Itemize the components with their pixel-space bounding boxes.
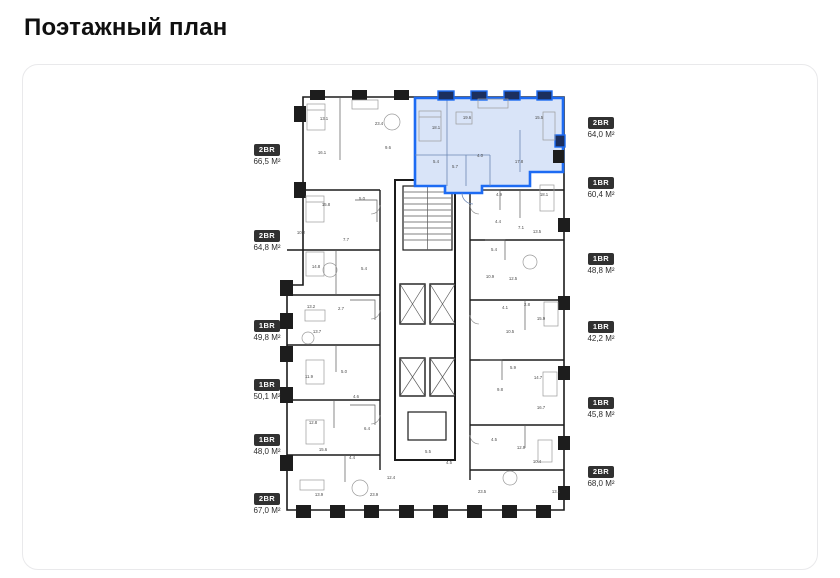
floor-plan[interactable]: 13.123.416.19.615.810.27.75.014.85.413.2…	[240, 80, 630, 555]
page-title: Поэтажный план	[24, 14, 227, 42]
room-area-label: 2.8	[524, 302, 531, 307]
unit-area: 42,2 М²	[576, 335, 626, 343]
room-area-label: 13.2	[307, 304, 316, 309]
room-area-label: 4.0	[477, 153, 484, 158]
unit-area: 50,1 М²	[242, 393, 292, 401]
room-area-label: 13.7	[313, 329, 322, 334]
room-area-label: 5.0	[359, 196, 366, 201]
unit-label-left-1[interactable]: 2BR64,8 М²	[242, 226, 292, 252]
unit-area: 48,0 М²	[242, 448, 292, 456]
unit-area: 49,8 М²	[242, 334, 292, 342]
room-area-label: 14.7	[534, 375, 543, 380]
room-area-label: 15.8	[322, 202, 331, 207]
unit-type-badge: 2BR	[254, 144, 280, 156]
room-area-label: 6.4	[364, 426, 371, 431]
room-area-label: 14.8	[312, 264, 321, 269]
room-area-label: 4.9	[496, 192, 503, 197]
room-area-label: 2.7	[338, 306, 345, 311]
room-area-label: 15.9	[537, 316, 546, 321]
room-area-label: 12.8	[309, 420, 318, 425]
room-area-label: 4.4	[495, 219, 502, 224]
unit-type-badge: 2BR	[254, 230, 280, 242]
unit-type-badge: 1BR	[588, 177, 614, 189]
room-area-label: 12.4	[387, 475, 396, 480]
unit-label-left-3[interactable]: 1BR50,1 М²	[242, 375, 292, 401]
room-area-label: 11.9	[305, 374, 314, 379]
unit-label-right-0[interactable]: 2BR64,0 М²	[576, 113, 626, 139]
unit-type-badge: 2BR	[588, 117, 614, 129]
room-area-label: 23.5	[478, 489, 487, 494]
room-area-label: 10.5	[506, 329, 515, 334]
unit-area: 68,0 М²	[576, 480, 626, 488]
room-area-label: 13.1	[552, 489, 561, 494]
room-area-label: 7.7	[343, 237, 350, 242]
room-area-label: 5.7	[452, 164, 459, 169]
room-area-label: 13.5	[533, 229, 542, 234]
room-area-label: 23.4	[375, 121, 384, 126]
room-area-label: 23.9	[370, 492, 379, 497]
unit-area: 67,0 М²	[242, 507, 292, 515]
room-area-label: 5.4	[433, 159, 440, 164]
room-area-label: 5.0	[341, 369, 348, 374]
unit-type-badge: 1BR	[588, 397, 614, 409]
room-area-label: 17.8	[515, 159, 524, 164]
unit-type-badge: 1BR	[588, 321, 614, 333]
room-area-label: 9.8	[497, 387, 504, 392]
room-area-label: 13.9	[315, 492, 324, 497]
room-area-label: 4.5	[446, 460, 453, 465]
room-area-label: 16.1	[318, 150, 327, 155]
unit-label-right-4[interactable]: 1BR45,8 М²	[576, 393, 626, 419]
room-area-label: 5.9	[510, 365, 517, 370]
room-area-label: 10.4	[533, 459, 542, 464]
unit-label-left-0[interactable]: 2BR66,5 М²	[242, 140, 292, 166]
room-area-label: 4.5	[491, 437, 498, 442]
room-area-label: 18.1	[432, 125, 441, 130]
room-area-label: 4.6	[353, 394, 360, 399]
unit-area: 64,0 М²	[576, 131, 626, 139]
room-area-label: 4.1	[502, 305, 509, 310]
room-area-label: 13.1	[320, 116, 329, 121]
room-area-label: 16.7	[537, 405, 546, 410]
room-area-label: 10.2	[297, 230, 306, 235]
unit-label-right-3[interactable]: 1BR42,2 М²	[576, 317, 626, 343]
room-area-label: 5.4	[361, 266, 368, 271]
room-area-label: 9.6	[385, 145, 392, 150]
unit-label-right-1[interactable]: 1BR60,4 М²	[576, 173, 626, 199]
unit-label-left-2[interactable]: 1BR49,8 М²	[242, 316, 292, 342]
unit-type-badge: 1BR	[588, 253, 614, 265]
room-area-label: 19.6	[463, 115, 472, 120]
unit-area: 66,5 М²	[242, 158, 292, 166]
room-area-label: 15.6	[319, 447, 328, 452]
unit-type-badge: 1BR	[254, 434, 280, 446]
unit-area: 64,8 М²	[242, 244, 292, 252]
room-area-label: 12.5	[509, 276, 518, 281]
room-area-label: 15.5	[535, 115, 544, 120]
room-area-label: 10.9	[486, 274, 495, 279]
unit-type-badge: 2BR	[254, 493, 280, 505]
unit-label-right-5[interactable]: 2BR68,0 М²	[576, 462, 626, 488]
room-area-label: 18.1	[540, 192, 549, 197]
unit-type-badge: 1BR	[254, 379, 280, 391]
room-area-label: 5.4	[491, 247, 498, 252]
unit-type-badge: 2BR	[588, 466, 614, 478]
unit-label-left-5[interactable]: 2BR67,0 М²	[242, 489, 292, 515]
unit-area: 60,4 М²	[576, 191, 626, 199]
room-area-label: 5.5	[425, 449, 432, 454]
unit-label-left-4[interactable]: 1BR48,0 М²	[242, 430, 292, 456]
unit-label-right-2[interactable]: 1BR48,8 М²	[576, 249, 626, 275]
room-area-label: 7.1	[518, 225, 525, 230]
elevator-shafts	[400, 284, 455, 440]
room-area-label: 12.9	[517, 445, 526, 450]
unit-area: 45,8 М²	[576, 411, 626, 419]
room-area-label: 4.4	[349, 455, 356, 460]
unit-area: 48,8 М²	[576, 267, 626, 275]
unit-type-badge: 1BR	[254, 320, 280, 332]
